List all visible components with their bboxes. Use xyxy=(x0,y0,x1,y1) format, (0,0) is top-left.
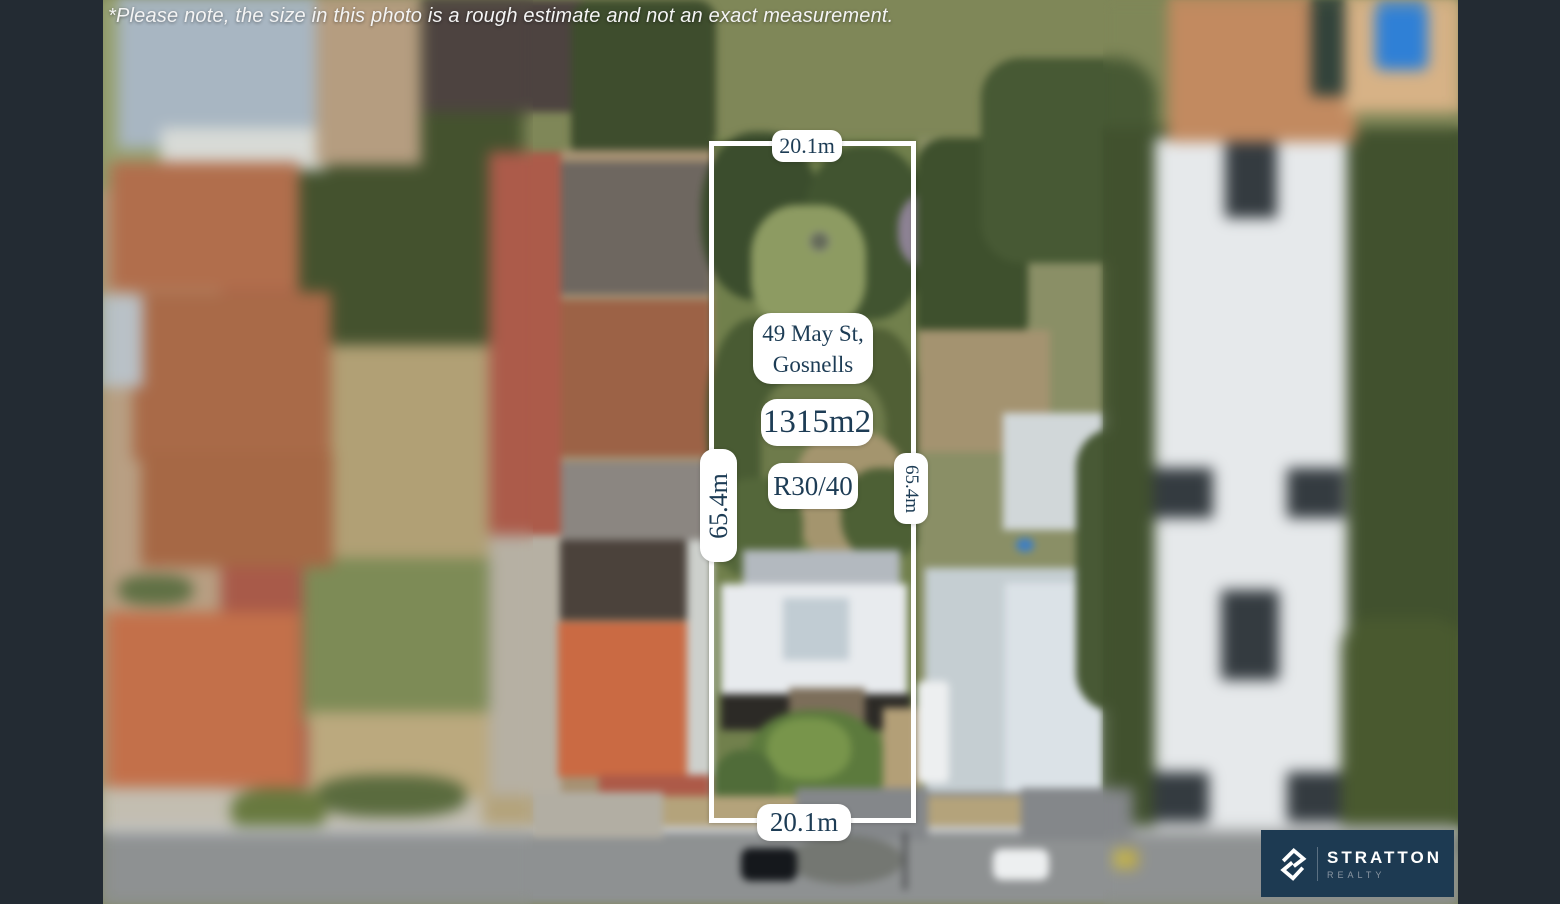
area-label: 1315m2 xyxy=(761,399,873,446)
logo-text: STRATTON REALTY xyxy=(1327,848,1442,880)
light-pole xyxy=(903,832,907,890)
logo-divider xyxy=(1317,847,1318,881)
tilt-shift-blur-right xyxy=(1103,0,1458,904)
address-label: 49 May St, Gosnells xyxy=(753,313,873,384)
logo-brand-name: STRATTON xyxy=(1327,848,1442,868)
address-line2: Gosnells xyxy=(773,349,854,380)
left-frame-bar xyxy=(0,0,103,904)
house-roof-terracotta xyxy=(561,300,711,456)
depth-left-value: 65.4m xyxy=(704,473,734,539)
stratton-logo-icon xyxy=(1278,846,1308,882)
car-white xyxy=(993,849,1049,880)
driveway-crossover xyxy=(531,792,663,838)
depth-label-right: 65.4m xyxy=(894,453,928,524)
brand-logo: STRATTON REALTY xyxy=(1261,830,1454,897)
zoning-value: R30/40 xyxy=(773,471,853,502)
car-dark xyxy=(741,848,797,881)
image-canvas: *Please note, the size in this photo is … xyxy=(0,0,1560,904)
address-line1: 49 May St, xyxy=(762,318,864,349)
right-frame-bar xyxy=(1458,0,1560,904)
frontage-label-bottom: 20.1m xyxy=(757,804,851,841)
area-value: 1315m2 xyxy=(763,404,871,441)
pool-toy xyxy=(1016,538,1034,552)
frontage-top-value: 20.1m xyxy=(779,133,835,159)
trailer xyxy=(917,681,949,783)
frontage-bottom-value: 20.1m xyxy=(770,807,838,838)
logo-tagline: REALTY xyxy=(1327,870,1442,880)
house-roof-gray xyxy=(561,162,711,294)
tree-shadow xyxy=(788,836,903,884)
depth-right-value: 65.4m xyxy=(900,464,922,512)
tilt-shift-blur-left xyxy=(103,0,533,904)
depth-label-left: 65.4m xyxy=(700,449,737,562)
zoning-label: R30/40 xyxy=(768,463,858,509)
disclaimer-text: *Please note, the size in this photo is … xyxy=(108,5,893,28)
frontage-label-top: 20.1m xyxy=(772,130,842,162)
